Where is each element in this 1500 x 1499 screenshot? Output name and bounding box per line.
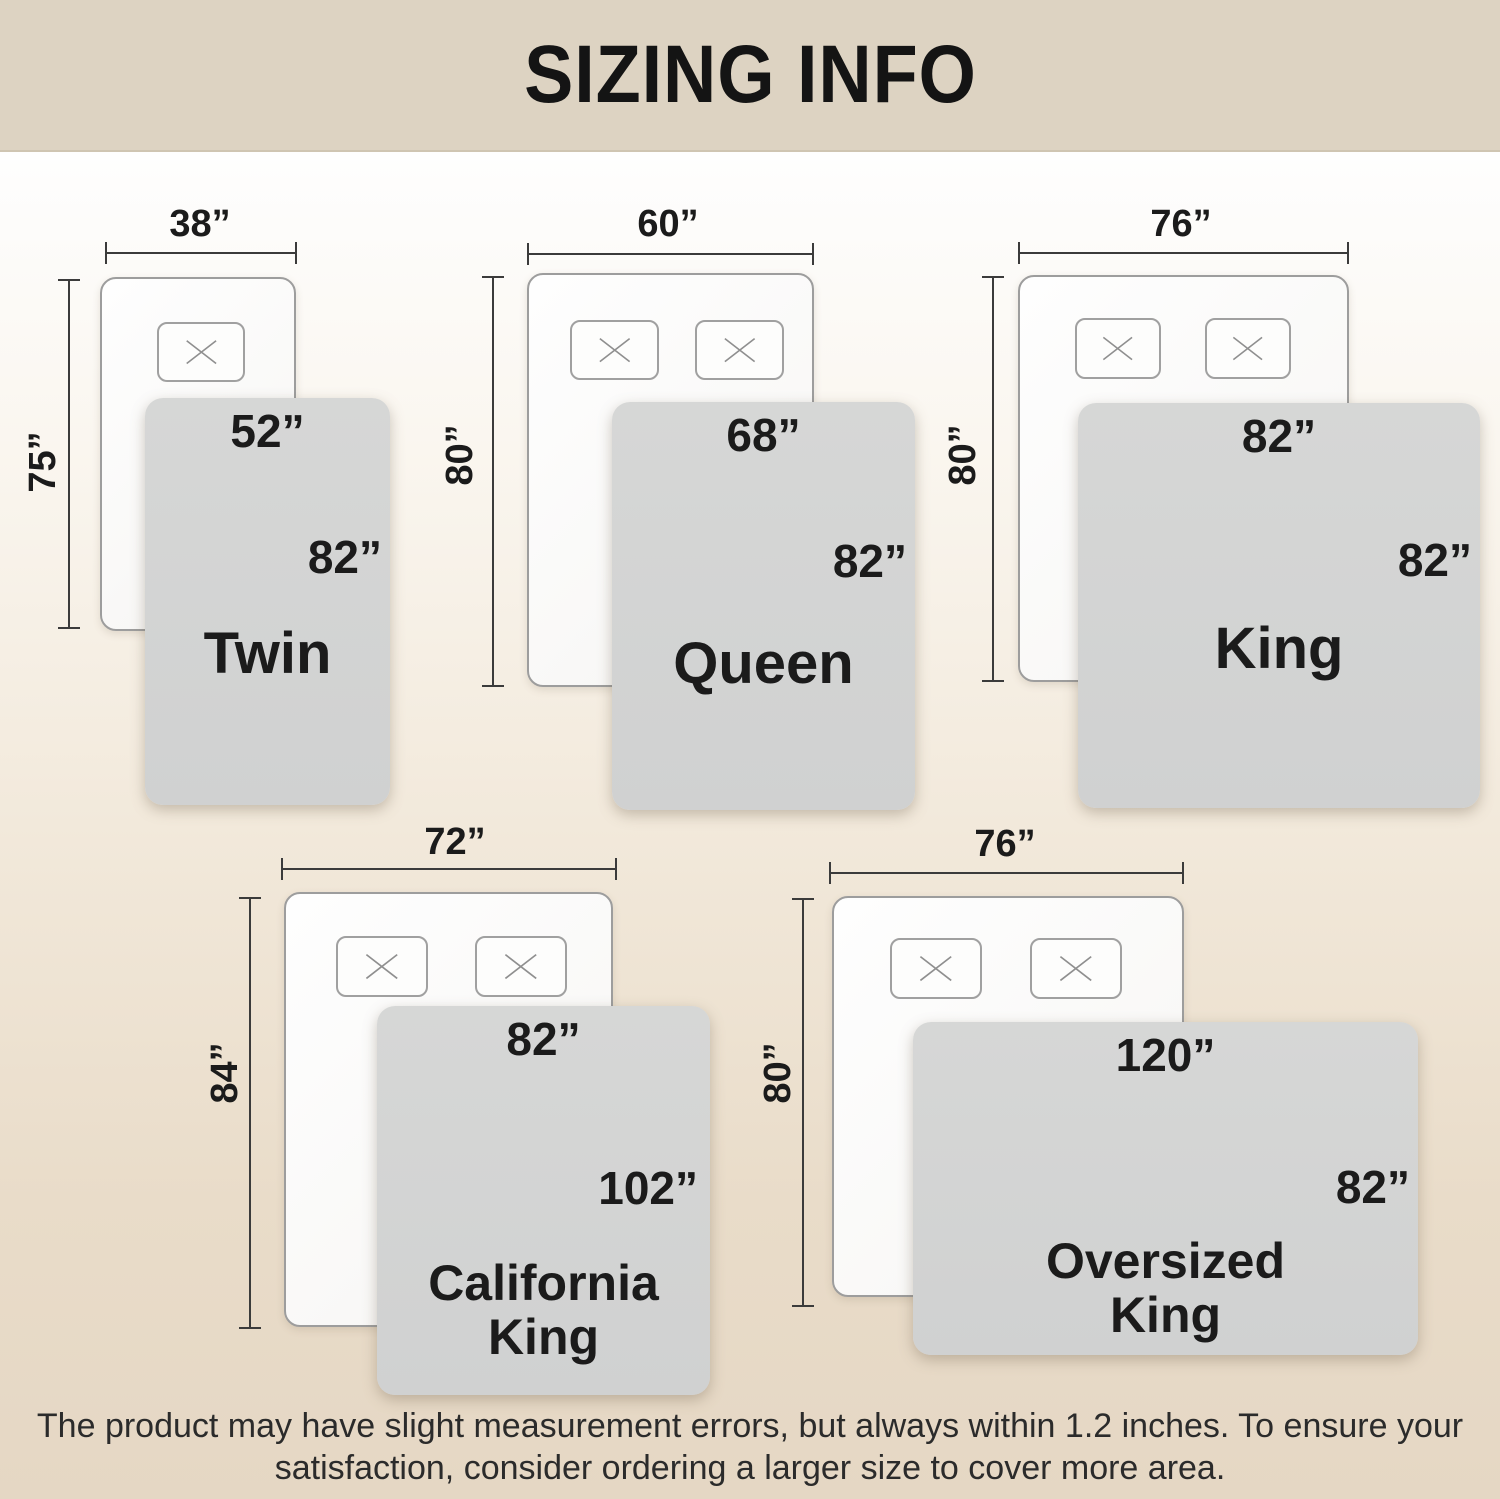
blanket-width-label: 120” [913, 1028, 1418, 1082]
pillow [570, 320, 659, 380]
pillow-x-icon [1219, 328, 1276, 369]
mattress-width-label: 76” [945, 822, 1065, 866]
mattress-height-label: 75” [21, 402, 65, 522]
blanket-height-label: 102” [598, 1161, 698, 1215]
bed-size-name: California King [377, 1256, 710, 1364]
blanket-width-label: 82” [377, 1012, 710, 1066]
page-title: SIZING INFO [524, 28, 977, 122]
blanket-height-label: 82” [1398, 533, 1472, 587]
blanket-width-label: 52” [145, 404, 390, 458]
pillow-x-icon [905, 948, 967, 989]
bed-size-name: Queen [612, 634, 915, 694]
bed-size-name: King [1078, 619, 1480, 679]
pillow-x-icon [172, 332, 231, 372]
blanket: 68” 82” Queen [612, 402, 915, 810]
mattress-width-label: 38” [140, 202, 260, 246]
blanket: 120” 82” Oversized King [913, 1022, 1418, 1355]
height-dimension-line [482, 276, 504, 687]
pillow [1075, 318, 1161, 379]
blanket-height-label: 82” [1336, 1160, 1410, 1214]
blanket-height-label: 82” [308, 530, 382, 584]
pillow-x-icon [710, 330, 770, 370]
pillow [475, 936, 567, 997]
mattress-width-label: 76” [1121, 202, 1241, 246]
bed-size-name: Twin [145, 624, 390, 684]
pillow [336, 936, 428, 997]
pillow-x-icon [1045, 948, 1107, 989]
pillow [1030, 938, 1122, 999]
pillow-x-icon [585, 330, 645, 370]
header-banner: SIZING INFO [0, 0, 1500, 152]
width-dimension-line [527, 243, 814, 265]
blanket-width-label: 68” [612, 408, 915, 462]
footer-note-line1: The product may have slight measurement … [0, 1405, 1500, 1447]
blanket: 52” 82” Twin [145, 398, 390, 805]
mattress-width-label: 60” [608, 202, 728, 246]
pillow [157, 322, 245, 382]
pillow-x-icon [1089, 328, 1146, 369]
footer-note: The product may have slight measurement … [0, 1405, 1500, 1489]
pillow [1205, 318, 1291, 379]
mattress-width-label: 72” [395, 820, 515, 864]
pillow [695, 320, 784, 380]
pillow-x-icon [490, 946, 552, 987]
pillow-x-icon [351, 946, 413, 987]
mattress-height-label: 80” [756, 1013, 800, 1133]
blanket: 82” 82” King [1078, 403, 1480, 808]
mattress-height-label: 80” [941, 395, 985, 515]
footer-note-line2: satisfaction, consider ordering a larger… [0, 1447, 1500, 1489]
blanket-width-label: 82” [1078, 409, 1480, 463]
height-dimension-line [982, 276, 1004, 682]
mattress-height-label: 84” [203, 1013, 247, 1133]
mattress-height-label: 80” [438, 395, 482, 515]
blanket: 82” 102” California King [377, 1006, 710, 1395]
bed-size-name: Oversized King [913, 1234, 1418, 1342]
blanket-height-label: 82” [833, 534, 907, 588]
sizing-infographic: SIZING INFO 38” 75” 52” 82” Twin 60” 80” [0, 0, 1500, 1499]
pillow [890, 938, 982, 999]
